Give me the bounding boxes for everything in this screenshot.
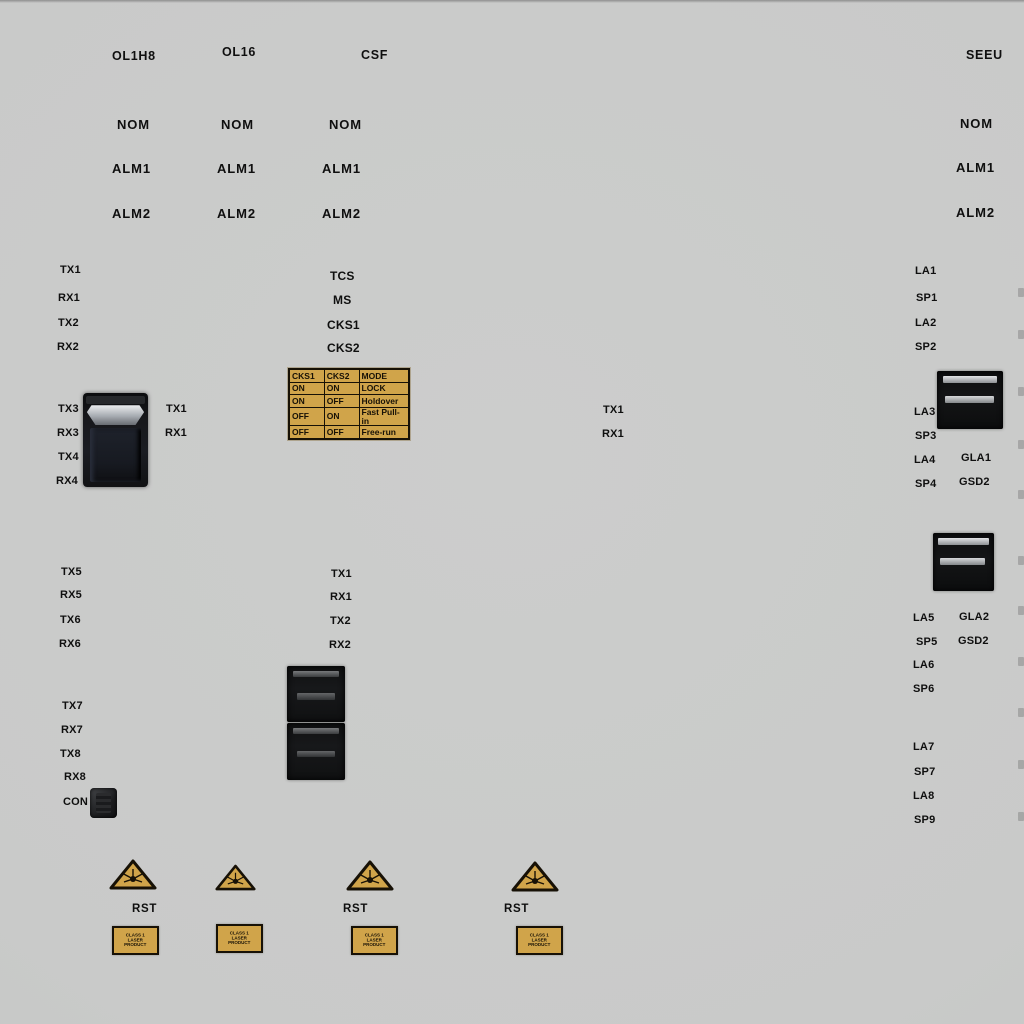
laser-warning-icon bbox=[511, 861, 559, 892]
port-label-rx1b: RX1 bbox=[165, 427, 187, 439]
port-label-rx7: RX7 bbox=[61, 724, 83, 736]
port-label-gla2: GLA2 bbox=[959, 611, 989, 623]
table-cell: Holdover bbox=[359, 395, 409, 408]
sticker-text: CLASS 1 LASER PRODUCT bbox=[363, 933, 385, 947]
port-label-tx5: TX5 bbox=[61, 566, 82, 578]
table-cell: OFF bbox=[324, 395, 359, 408]
table-cell: ON bbox=[289, 395, 324, 408]
connector-bar bbox=[940, 558, 985, 565]
port-label-sp9: SP9 bbox=[914, 814, 935, 826]
port-label-la3: LA3 bbox=[914, 406, 935, 418]
port-label-gsd2: GSD2 bbox=[959, 476, 990, 488]
class1-laser-sticker: CLASS 1 LASER PRODUCT bbox=[216, 924, 263, 953]
signal-label-tcs: TCS bbox=[330, 269, 355, 283]
port-label-sp6: SP6 bbox=[913, 683, 934, 695]
port-label-rx3: RX3 bbox=[57, 427, 79, 439]
sticker-line: PRODUCT bbox=[124, 943, 146, 948]
panel-edge-mark bbox=[1018, 387, 1024, 396]
panel-edge-mark bbox=[1018, 440, 1024, 449]
signal-label-cks1: CKS1 bbox=[327, 318, 360, 332]
cks-mode-table: CKS1 CKS2 MODE ON ON LOCK ON OFF Holdove… bbox=[288, 368, 410, 440]
class1-laser-sticker: CLASS 1 LASER PRODUCT bbox=[516, 926, 563, 955]
console-label: CON bbox=[63, 796, 88, 808]
port-label-sp2: SP2 bbox=[915, 341, 936, 353]
csf-optical-adapter-2[interactable] bbox=[287, 723, 345, 780]
port-label-tx1: TX1 bbox=[60, 264, 81, 276]
led-label-alm2: ALM2 bbox=[956, 205, 995, 220]
card-title-ol16: OL16 bbox=[222, 45, 256, 59]
port-label-rx1-csf: RX1 bbox=[330, 591, 352, 603]
connector-cap bbox=[86, 396, 145, 404]
panel-edge-mark bbox=[1018, 330, 1024, 339]
connector-body bbox=[90, 428, 141, 483]
connector-bar bbox=[943, 376, 997, 383]
class1-laser-sticker: CLASS 1 LASER PRODUCT bbox=[112, 926, 159, 955]
adapter-slot bbox=[297, 751, 335, 757]
led-label-alm2: ALM2 bbox=[112, 206, 151, 221]
port-label-tx2-csf: TX2 bbox=[330, 615, 351, 627]
port-label-rx8: RX8 bbox=[64, 771, 86, 783]
sticker-line: PRODUCT bbox=[528, 943, 550, 948]
port-label-sp4: SP4 bbox=[915, 478, 936, 490]
panel-edge-mark bbox=[1018, 490, 1024, 499]
led-label-alm2: ALM2 bbox=[217, 206, 256, 221]
port-label-rx4: RX4 bbox=[56, 475, 78, 487]
table-cell: OFF bbox=[324, 426, 359, 439]
reset-button-label[interactable]: RST bbox=[343, 903, 368, 915]
port-label-tx1-csf: TX1 bbox=[331, 568, 352, 580]
panel-edge-mark bbox=[1018, 812, 1024, 821]
port-label-tx6: TX6 bbox=[60, 614, 81, 626]
port-label-rx2: RX2 bbox=[57, 341, 79, 353]
optical-connector-module[interactable] bbox=[83, 393, 148, 487]
led-label-nom: NOM bbox=[329, 117, 362, 132]
card-title-csf: CSF bbox=[361, 48, 388, 62]
equipment-front-panel: OL1H8 OL16 CSF SEEU NOM ALM1 ALM2 NOM AL… bbox=[0, 0, 1024, 1024]
led-label-alm1: ALM1 bbox=[322, 161, 361, 176]
card-title-ol1h8: OL1H8 bbox=[112, 49, 156, 63]
port-label-rx2-csf: RX2 bbox=[329, 639, 351, 651]
reset-button-label[interactable]: RST bbox=[504, 903, 529, 915]
led-label-nom: NOM bbox=[117, 117, 150, 132]
signal-label-ms: MS bbox=[333, 293, 351, 307]
class1-laser-sticker: CLASS 1 LASER PRODUCT bbox=[351, 926, 398, 955]
port-label-tx7: TX7 bbox=[62, 700, 83, 712]
port-label-tx8: TX8 bbox=[60, 748, 81, 760]
led-label-alm2: ALM2 bbox=[322, 206, 361, 221]
table-cell: ON bbox=[289, 382, 324, 395]
panel-edge-mark bbox=[1018, 288, 1024, 297]
port-label-la4: LA4 bbox=[914, 454, 935, 466]
table-cell: LOCK bbox=[359, 382, 409, 395]
port-label-tx3: TX3 bbox=[58, 403, 79, 415]
seeu-port-connector-1[interactable] bbox=[937, 371, 1003, 429]
port-label-rx6: RX6 bbox=[59, 638, 81, 650]
port-label-rx1-mid: RX1 bbox=[602, 428, 624, 440]
laser-warning-icon bbox=[215, 864, 256, 891]
console-connector[interactable] bbox=[90, 788, 117, 818]
panel-edge-mark bbox=[1018, 606, 1024, 615]
port-label-sp5: SP5 bbox=[916, 636, 937, 648]
panel-edge-mark bbox=[1018, 760, 1024, 769]
port-label-gsd2b: GSD2 bbox=[958, 635, 989, 647]
reset-button-label[interactable]: RST bbox=[132, 903, 157, 915]
adapter-latch bbox=[293, 728, 338, 734]
table-cell: ON bbox=[324, 382, 359, 395]
connector-bar bbox=[945, 396, 994, 403]
panel-edge-mark bbox=[1018, 708, 1024, 717]
connector-bar bbox=[938, 538, 988, 545]
adapter-latch bbox=[293, 671, 338, 677]
port-label-sp1: SP1 bbox=[916, 292, 937, 304]
port-label-la2: LA2 bbox=[915, 317, 936, 329]
port-label-tx1-mid: TX1 bbox=[603, 404, 624, 416]
sticker-text: CLASS 1 LASER PRODUCT bbox=[528, 933, 550, 947]
table-cell: OFF bbox=[289, 408, 324, 426]
card-title-seeu: SEEU bbox=[966, 48, 1003, 62]
connector-pins bbox=[96, 793, 111, 812]
port-label-la7: LA7 bbox=[913, 741, 934, 753]
sticker-text: CLASS 1 LASER PRODUCT bbox=[228, 931, 250, 945]
port-label-tx1b: TX1 bbox=[166, 403, 187, 415]
led-label-alm1: ALM1 bbox=[956, 160, 995, 175]
port-label-la1: LA1 bbox=[915, 265, 936, 277]
led-label-alm1: ALM1 bbox=[217, 161, 256, 176]
laser-warning-icon bbox=[346, 860, 394, 891]
port-label-gla1: GLA1 bbox=[961, 452, 991, 464]
led-label-nom: NOM bbox=[221, 117, 254, 132]
csf-optical-adapter-1[interactable] bbox=[287, 666, 345, 722]
table-header-cks2: CKS2 bbox=[324, 369, 359, 382]
port-label-la6: LA6 bbox=[913, 659, 934, 671]
port-label-tx4: TX4 bbox=[58, 451, 79, 463]
connector-metal-latch bbox=[87, 405, 144, 425]
led-label-alm1: ALM1 bbox=[112, 161, 151, 176]
panel-edge-mark bbox=[1018, 556, 1024, 565]
led-label-nom: NOM bbox=[960, 116, 993, 131]
table-cell: ON bbox=[324, 408, 359, 426]
port-label-rx5: RX5 bbox=[60, 589, 82, 601]
sticker-text: CLASS 1 LASER PRODUCT bbox=[124, 933, 146, 947]
port-label-sp7: SP7 bbox=[914, 766, 935, 778]
sticker-line: PRODUCT bbox=[228, 941, 250, 946]
table-cell: Fast Pull-in bbox=[359, 408, 409, 426]
table-header-cks1: CKS1 bbox=[289, 369, 324, 382]
laser-warning-icon bbox=[109, 859, 157, 890]
signal-label-cks2: CKS2 bbox=[327, 341, 360, 355]
port-label-la5: LA5 bbox=[913, 612, 934, 624]
sticker-line: PRODUCT bbox=[363, 943, 385, 948]
port-label-la8: LA8 bbox=[913, 790, 934, 802]
port-label-rx1: RX1 bbox=[58, 292, 80, 304]
panel-edge-mark bbox=[1018, 657, 1024, 666]
port-label-sp3: SP3 bbox=[915, 430, 936, 442]
adapter-slot bbox=[297, 693, 335, 699]
table-header-mode: MODE bbox=[359, 369, 409, 382]
seeu-port-connector-2[interactable] bbox=[933, 533, 994, 591]
table-cell: OFF bbox=[289, 426, 324, 439]
table-cell: Free-run bbox=[359, 426, 409, 439]
port-label-tx2: TX2 bbox=[58, 317, 79, 329]
